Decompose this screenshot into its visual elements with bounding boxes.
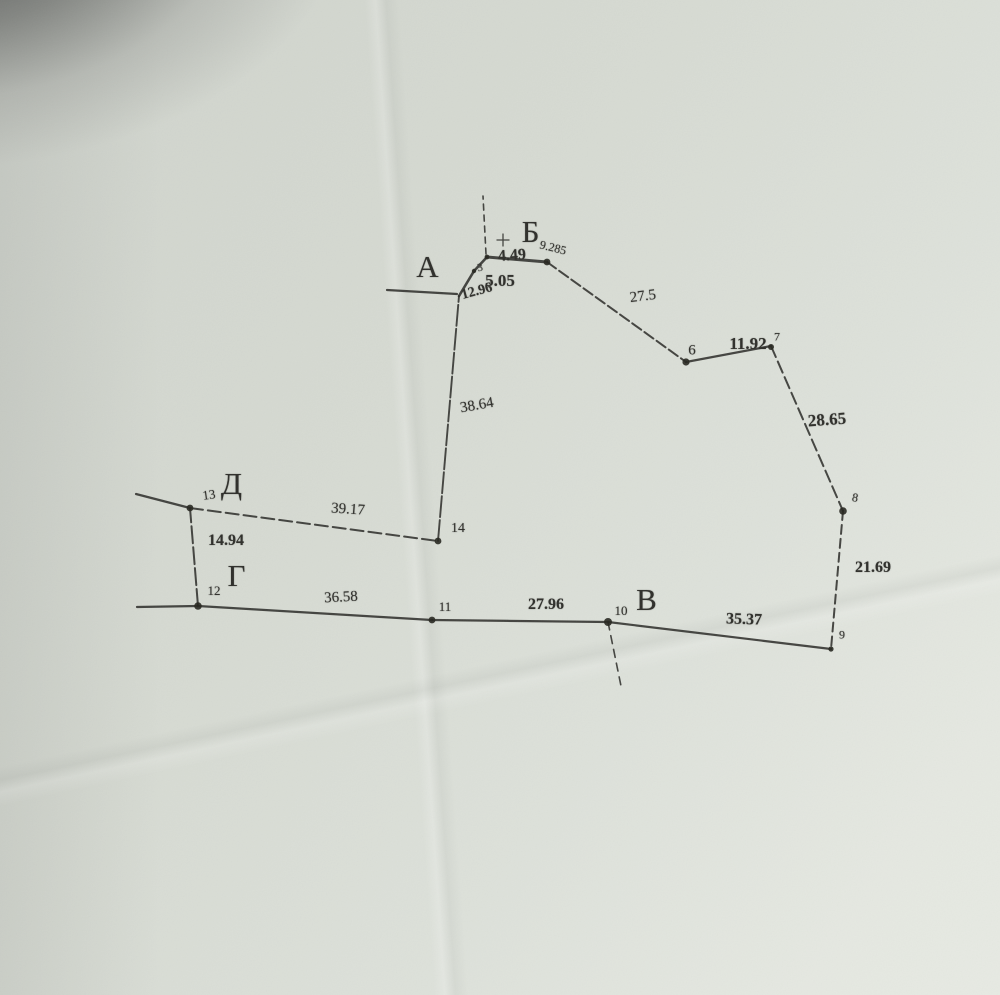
segment-5-6	[547, 262, 686, 362]
point-number-6: 6	[688, 343, 696, 360]
segment-9-10	[608, 622, 831, 649]
segment-a-tail	[387, 290, 457, 294]
point-dot-7	[768, 344, 774, 350]
point-dot-4	[485, 255, 490, 260]
point-dot-12	[194, 602, 202, 610]
distance-label-27-5: 27.5	[629, 287, 657, 307]
distance-label-36-58: 36.58	[324, 589, 359, 608]
segment-13-left	[136, 494, 190, 508]
extension-line-above-4	[483, 196, 486, 254]
vertex-letter-b: Б	[522, 214, 541, 250]
vertex-letter-v: В	[636, 582, 658, 618]
distance-label-39-17: 39.17	[331, 500, 366, 519]
vertex-letter-g: Г	[228, 558, 247, 594]
distance-label-21-69: 21.69	[855, 559, 891, 577]
segment-12-13	[190, 508, 198, 606]
point-number-12: 12	[208, 583, 221, 599]
distance-label-11-92: 11.92	[729, 334, 766, 354]
scanned-survey-sketch: А Б В Г Д 3 6 7 8 9 10 11 12 13 14 9.285…	[0, 0, 1000, 995]
point-number-9: 9	[839, 628, 845, 643]
point-dot-3	[472, 269, 476, 273]
distance-label-4-49: 4.49	[497, 246, 526, 266]
vertex-letter-d: Д	[221, 466, 243, 502]
segment-11-12	[198, 606, 432, 620]
point-dot-9	[828, 646, 833, 651]
boundary-drawing	[0, 0, 1000, 995]
point-number-10: 10	[615, 603, 628, 619]
distance-label-27-96: 27.96	[528, 596, 564, 614]
point-number-13: 13	[201, 486, 216, 504]
segment-12-left	[137, 606, 198, 607]
distance-label-14-94: 14.94	[208, 532, 244, 550]
point-number-3: 3	[476, 262, 484, 275]
point-dot-5	[544, 259, 551, 266]
point-dot-14	[435, 538, 442, 545]
point-number-14: 14	[451, 521, 465, 537]
distance-label-35-37: 35.37	[726, 610, 763, 629]
vertex-letter-a: А	[416, 249, 439, 285]
extension-line-below-10	[608, 622, 621, 686]
distance-label-28-65: 28.65	[807, 409, 847, 432]
point-dot-10	[604, 618, 612, 626]
segment-14-2	[438, 296, 459, 541]
cross-marker-point-4	[497, 234, 509, 246]
point-number-7: 7	[774, 330, 780, 345]
point-dot-11	[429, 617, 436, 624]
segment-10-11	[432, 620, 608, 622]
point-dot-13	[187, 505, 194, 512]
point-dot-8	[839, 507, 847, 515]
point-number-11: 11	[439, 599, 452, 615]
